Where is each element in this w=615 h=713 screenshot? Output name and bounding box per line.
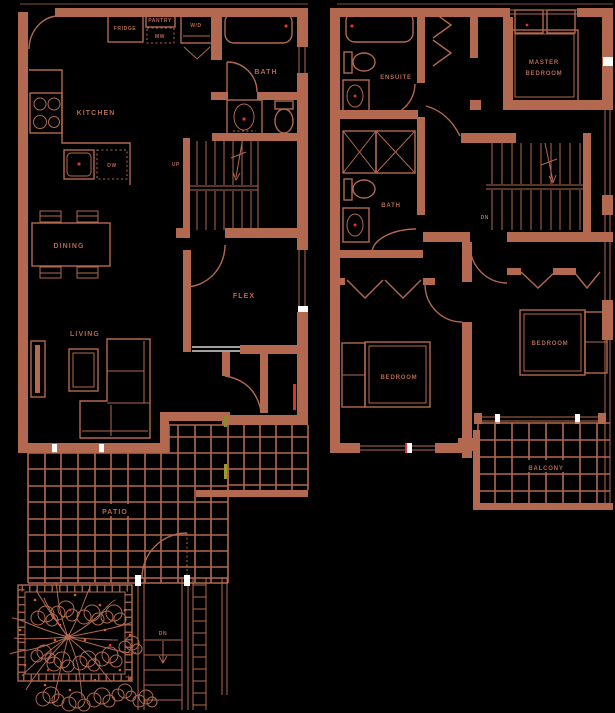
toilet [275,101,293,109]
bedroom-right-door-arc [470,245,507,283]
second-floor-plan: ENSUITE BATH [330,4,613,510]
gate-post [184,575,190,586]
tree-trunk [65,634,71,640]
label-bath-1: BATH [254,69,277,76]
first-floor-plan: FRIDGE PANTRY MW W/D DW KITCHEN BATH [18,4,308,453]
bath2-door-arc [372,229,416,252]
label-patio: PATIO [102,509,128,516]
ensuite: ENSUITE [330,12,418,119]
window-highlight [603,57,613,66]
wall-left [18,12,28,453]
label-stairs-up: UP [172,162,180,168]
wall-left-2 [330,8,340,453]
bath2-toilet [344,179,352,200]
gate-post [135,575,141,586]
stairs-down: DN [426,106,591,242]
red-door-frame [293,384,296,410]
bedroom-left: BEDROOM [330,278,472,453]
dining-set: DINING [32,211,110,278]
label-master-line1: MASTER [529,60,559,66]
bath-door-arc [227,62,257,92]
olive-tick [224,416,227,427]
olive-tick [224,464,227,479]
walkway-hatch [193,578,227,710]
red-mullion [405,443,407,453]
label-flex: FLEX [233,293,255,300]
label-bedroom-right: BEDROOM [532,341,569,347]
floor-plan-screenshot: FRIDGE PANTRY MW W/D DW KITCHEN BATH [0,0,615,713]
master-bedroom: MASTER BEDROOM [470,10,613,110]
bath-2: BATH [330,131,423,258]
bedroom-right: BEDROOM [474,268,607,424]
label-washer-dryer: W/D [190,23,202,29]
patio: PATIO DN [28,416,308,710]
window-highlight [298,306,308,312]
tree-branches [10,584,136,702]
sofa [80,339,150,438]
entry-door-arc [29,16,57,49]
closet-doors [347,280,421,298]
entry-closet-doors [433,12,451,66]
gate-arc [142,533,187,578]
planter-tree [10,584,157,711]
floor-plan-drawing: FRIDGE PANTRY MW W/D DW KITCHEN BATH [0,0,615,713]
label-bath-2: BATH [381,203,400,209]
stair-door-arc [426,106,460,136]
label-kitchen: KITCHEN [77,110,116,117]
bedroom-left-door-arc [425,284,462,322]
label-master-line2: BEDROOM [526,71,563,77]
patio-vestibule [222,352,308,425]
label-patio-steps-down: DN [159,631,167,637]
flex-room: FLEX [176,228,308,354]
label-microwave: MW [155,34,165,40]
bathtub [225,13,292,43]
label-living: LIVING [70,331,100,338]
window-post [99,444,104,453]
wall-bath [211,17,222,60]
window-post [52,444,57,453]
living-room: LIVING [31,331,150,438]
ensuite-toilet [344,52,352,73]
balcony: BALCONY [458,423,613,510]
window-post [407,443,412,453]
label-dishwasher: DW [107,163,117,169]
label-dining: DINING [53,243,84,250]
stairs-up: UP [172,133,297,233]
label-bedroom-left: BEDROOM [381,375,418,381]
label-pantry: PANTRY [148,18,172,24]
patio-door-arc [225,376,261,411]
label-stairs-down: DN [481,215,489,221]
label-fridge: FRIDGE [114,26,137,32]
patio-steps: DN [135,575,190,710]
label-ensuite: ENSUITE [380,75,412,81]
label-balcony: BALCONY [528,466,563,472]
